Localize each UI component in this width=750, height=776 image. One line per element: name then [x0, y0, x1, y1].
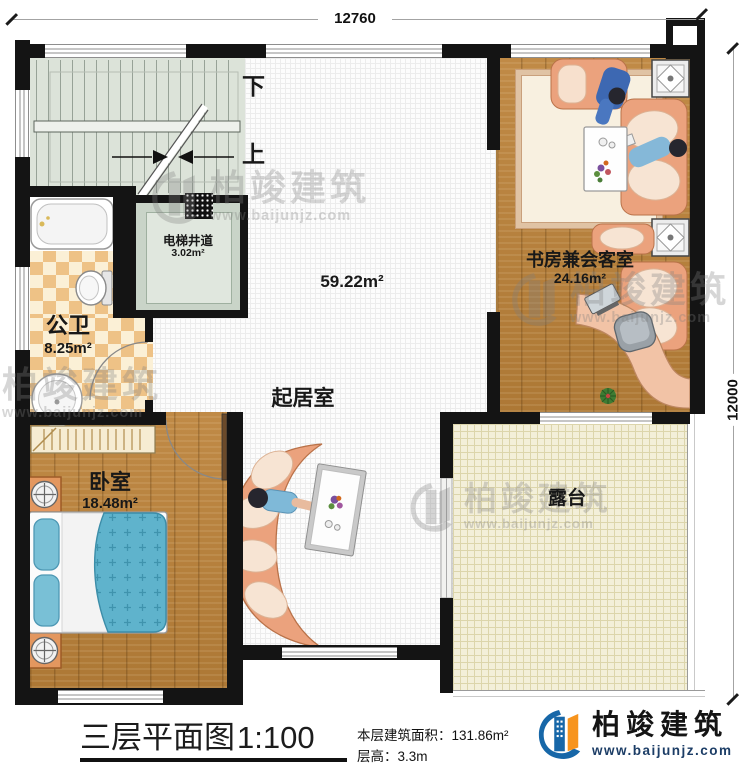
terrace-parapet-right: [687, 412, 706, 704]
elevator-door-hatch: [185, 193, 213, 219]
floor-height-value: 3.3m: [398, 749, 428, 764]
wall-terrace-left-lower: [440, 598, 453, 693]
stairs-up-label: 上: [242, 142, 265, 168]
wall-study-left-upper: [487, 58, 500, 150]
study-rug: [516, 70, 662, 228]
bathroom-label: 公卫 8.25m²: [28, 314, 108, 357]
wall-elevator-right: [240, 195, 248, 318]
floor-area-value: 131.86m²: [452, 728, 509, 743]
bedroom-floor: [30, 412, 227, 688]
window-top-living: [266, 44, 442, 58]
window-top-stairs: [45, 44, 186, 58]
brand-logo-icon: [536, 707, 584, 761]
elevator-area: 3.02m²: [136, 248, 240, 260]
window-left-stairs: [15, 90, 30, 157]
elevator-label: 电梯井道 3.02m²: [136, 234, 240, 260]
bathtub-base: [30, 197, 113, 251]
title-underline: [80, 758, 347, 762]
terrace-parapet-bottom: [453, 690, 705, 705]
brand-block: 柏竣建筑 www.baijunjz.com: [536, 707, 733, 761]
window-bottom-bedroom: [58, 690, 163, 703]
chimney-flue: [673, 26, 697, 45]
wall-elevator-bottom: [113, 310, 248, 318]
window-top-study: [511, 44, 650, 58]
study-name: 书房兼会客室: [510, 250, 650, 270]
study-area: 24.16m²: [510, 271, 650, 287]
terrace-floor: [453, 424, 687, 690]
bathroom-name: 公卫: [28, 314, 108, 339]
plan-info: 本层建筑面积：131.86m² 层高：3.3m: [357, 726, 509, 768]
wall-terrace-left-upper: [440, 412, 453, 478]
brand-website: www.baijunjz.com: [592, 743, 733, 758]
wall-bath-right-upper: [145, 310, 153, 342]
stairs-down-label: 下: [242, 74, 265, 100]
elevator-name: 电梯井道: [136, 234, 240, 248]
wall-bedroom-top: [15, 412, 166, 425]
living-area: 59.22m²: [302, 272, 402, 291]
study-label: 书房兼会客室 24.16m²: [510, 250, 650, 287]
wall-elevator-left: [113, 195, 136, 318]
terrace-name: 露台: [527, 488, 607, 509]
floor-height-label: 层高：: [357, 749, 398, 764]
dimension-right-value: 12000: [723, 374, 744, 426]
living-name: 起居室: [253, 387, 353, 411]
plan-scale: 1:100: [237, 720, 315, 755]
bedroom-name: 卧室: [50, 471, 170, 495]
brand-name: 柏竣建筑: [592, 711, 733, 739]
bedroom-area: 18.48m²: [50, 496, 170, 513]
wall-bedroom-right: [227, 412, 243, 705]
window-study-terrace: [540, 412, 652, 424]
plan-title-text: 三层平面图: [80, 720, 235, 755]
floor-area-row: 本层建筑面积：131.86m²: [357, 726, 509, 747]
plan-title: 三层平面图1:100: [80, 712, 315, 757]
wall-study-left-lower: [487, 312, 500, 412]
floor-area-label: 本层建筑面积：: [357, 728, 452, 743]
wall-right: [690, 40, 705, 414]
floor-height-row: 层高：3.3m: [357, 747, 509, 768]
wall-bath-right-lower: [145, 400, 153, 413]
bathroom-area: 8.25m²: [28, 341, 108, 358]
window-bottom-living: [282, 647, 397, 658]
staircase-floor: [30, 58, 245, 195]
dimension-top-value: 12760: [318, 10, 392, 27]
bedroom-label: 卧室 18.48m²: [50, 471, 170, 512]
floor-plan-canvas: 柏竣建筑 www.baijunjz.com 柏竣建筑 www.baijunjz.…: [0, 0, 750, 776]
